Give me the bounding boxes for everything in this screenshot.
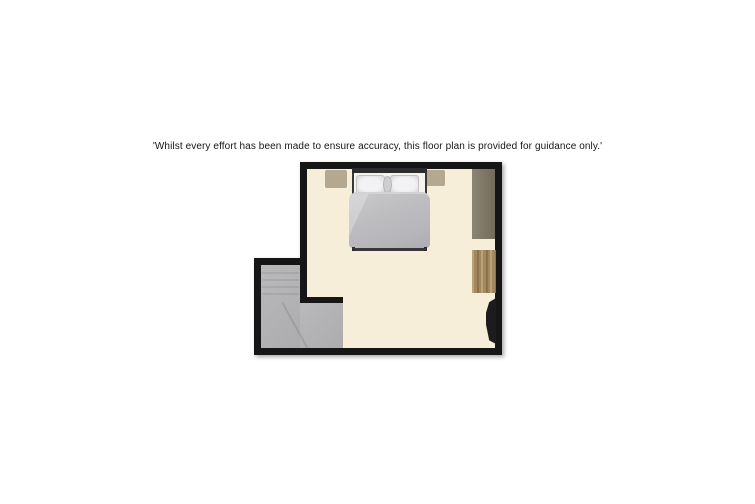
- wall-partition: [300, 297, 343, 303]
- wardrobe: [472, 169, 495, 239]
- stair-step-line: [262, 286, 299, 288]
- duvet: [349, 192, 430, 248]
- stair-step-line: [262, 272, 299, 274]
- bed-headboard: [352, 168, 427, 173]
- bed-footboard: [353, 248, 426, 250]
- bedside-table-right: [424, 170, 445, 186]
- wall-extension-left: [254, 258, 261, 355]
- wall-extension-top: [254, 258, 307, 265]
- disclaimer-text: 'Whilst every effort has been made to en…: [0, 141, 755, 152]
- bedside-table-left: [325, 170, 347, 188]
- floor-plan-canvas: [254, 162, 502, 355]
- stair-step-line: [262, 293, 299, 295]
- wall-bottom: [254, 348, 502, 355]
- floor-plan: [254, 162, 502, 355]
- stair-winder-line: [282, 302, 308, 349]
- wall-left: [300, 162, 307, 303]
- stair-step-line: [262, 279, 299, 281]
- bed-cushion: [383, 176, 392, 193]
- chest-of-drawers: [472, 250, 496, 293]
- wall-right: [495, 162, 502, 355]
